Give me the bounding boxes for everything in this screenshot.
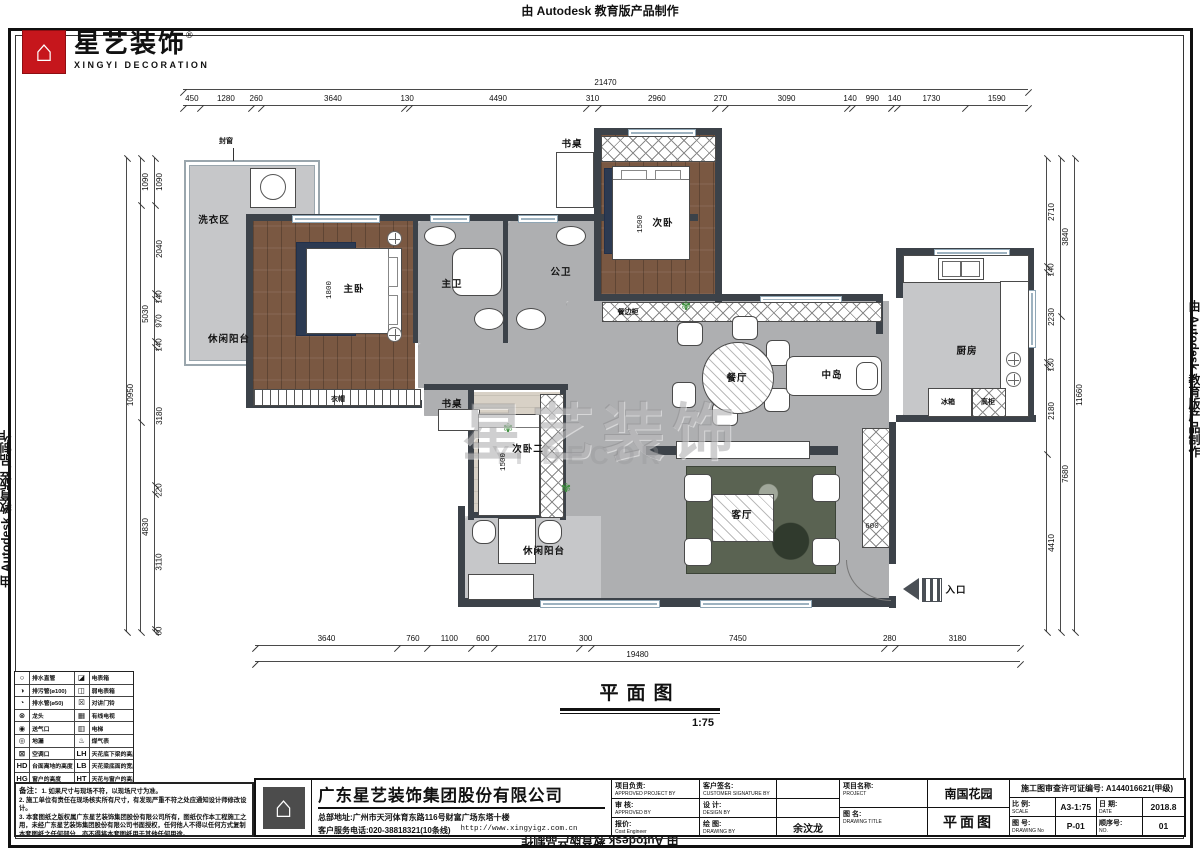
room-label: 冰箱 [941,397,955,407]
titleblock-row: 绘 图:DRAWING BY余汶龙 [700,818,839,836]
room-label: 客厅 [731,507,752,521]
island-stool [856,362,878,390]
legend-label: 地漏 [30,735,74,747]
room-label: 主卫 [441,276,462,290]
room-label: 书桌 [561,136,582,150]
armchair [812,474,840,502]
legend-label: 弱电表箱 [90,685,133,697]
entry-arrow-icon [903,578,919,600]
titleblock-house-icon: ⌂ [263,787,305,829]
room-label: 书桌 [441,396,462,410]
titleblock-meta-col: 施工图审查许可证编号: A144016621(甲级) 比 例:SCALE A3-… [1010,780,1184,835]
plan-dimension-label: 600 [865,523,879,531]
dimension-bottom-segments: 36407601100600217030074502803180 [255,632,1020,646]
titleblock-value [776,799,839,817]
legend-symbol: ▥ [75,722,90,734]
dimension-left-segments: 109020401409701403180220311060 [154,158,168,632]
legend-symbol: ◉ [15,722,30,734]
dimension-top-segments: 4501280260364013044903102960270309014099… [183,92,1028,106]
room-label: 高柜 [981,397,995,407]
dining-chair [732,316,758,340]
legend-label: 有线电视 [90,710,133,722]
legend-table: ○排水直管◪电表箱◑排污管(ø100)◫弱电表箱◔排水管(ø50)☒对讲门铃⊗龙… [14,671,134,785]
armchair [684,538,712,566]
room-label: 公卫 [550,264,571,278]
dimension-bottom-total: 19480 [255,648,1020,662]
legend-label: 天花梁底面的宽度 [90,760,133,772]
room-label: 次卧二 [512,441,544,455]
company-url: http://www.xingyigz.com.cn [461,825,578,836]
titleblock-row: 客户签名:CUSTOMER SIGNATURE BY [700,780,839,799]
legend-label: 排水管(ø50) [30,697,74,709]
plant-icon: ✾ [681,300,691,312]
legend-symbol: LH [75,748,90,760]
sink-public-bath [556,226,586,246]
titleblock-signature-col: 客户签名:CUSTOMER SIGNATURE BY设 计:DESIGN BY绘… [700,780,840,835]
legend-label: 电表箱 [90,672,133,684]
legend-symbol: ☒ [75,697,90,709]
wardrobe-bedroom2 [601,136,716,162]
legend-symbol: ◑ [15,685,30,697]
notes-box: 备注：1. 如果尺寸与现场不符，以现场尺寸为准。 2. 施工单位有责任在现场核实… [14,782,254,837]
window [540,600,660,608]
room-label: 洗衣区 [198,212,230,226]
plan-dimension-label: 1500 [500,453,508,471]
drawing-no-cell: 图 号:DRAWING No P-01 [1010,817,1097,835]
permit-number: 施工图审查许可证编号: A144016621(甲级) [1010,780,1184,798]
legend-symbol: ◫ [75,685,90,697]
legend-symbol: ◪ [75,672,90,684]
sealed-window-arrow [233,148,234,161]
logo-registered-mark: ® [186,30,193,40]
drawing-title-text: 平面图 [560,678,720,705]
legend-row: ⊗龙头▦有线电视 [15,710,133,723]
legend-row: ◔排水管(ø50)☒对讲门铃 [15,697,133,710]
washing-machine [250,168,296,208]
titleblock-row: 审 核:APPROVED BY [612,799,699,818]
logo-house-icon: ⌂ [22,30,66,74]
stove-burner [1006,352,1021,367]
legend-row: ○排水直管◪电表箱 [15,672,133,685]
dining-chair [677,322,703,346]
scale-cell: 比 例:SCALE A3-1:75 [1010,798,1097,817]
dimension-top-total: 21470 [183,76,1028,90]
legend-symbol: ◔ [15,697,30,709]
dimension-right-segments: 2710140223013021804410 [1046,158,1060,632]
legend-label: 对讲门铃 [90,697,133,709]
drawing-name-value: 平面图 [928,808,1009,835]
date-cell: 日 期:DATE 2018.8 [1097,798,1184,817]
company-address: 总部地址:广州市天河体育东路116号财富广场东塔十楼 [318,812,605,823]
ceiling-mark [387,231,402,246]
legend-row: ◎地漏♨煤气表 [15,735,133,748]
note-line: 3. 本套图纸之版权属广东星艺装饰集团股份有限公司所有，图纸仅作本工程施工之用，… [19,814,246,838]
wall-segment [458,506,465,606]
legend-row: HD台面离地的高度LB天花梁底面的宽度 [15,760,133,773]
wall-segment [715,128,722,304]
window [430,215,470,223]
toilet-public-bath [516,308,546,330]
legend-symbol: ○ [15,672,30,684]
drawing-scale: 1:75 [560,717,720,729]
armchair [812,538,840,566]
titleblock-value [776,780,839,798]
legend-symbol: ▦ [75,710,90,722]
titleblock-row: 报价:Cost Engineer [612,818,699,836]
legend-symbol: LB [75,760,90,772]
project-name-value: 南国花园 [928,780,1009,807]
room-label: 主卧 [343,281,364,295]
legend-label: 龙头 [30,710,74,722]
room-label: 餐边柜 [618,307,639,317]
legend-symbol: ⊗ [15,710,30,722]
date-value: 2018.8 [1143,798,1184,816]
legend-label: 天花底下梁的高度 [90,748,133,760]
title-block: ⌂ 广东星艺装饰集团股份有限公司 总部地址:广州市天河体育东路116号财富广场东… [254,778,1186,837]
wall-segment [503,221,508,343]
armchair [684,474,712,502]
drawing-name-label: 图 名:DRAWING TITLE [840,808,928,835]
ceiling-mark [387,327,402,342]
balcony-sink-unit [468,574,534,600]
wall-segment [594,135,601,301]
titleblock-value: 余汶龙 [776,818,839,836]
drawing-title: 平面图 1:75 [560,678,720,729]
titleblock-logo: ⌂ [256,780,312,835]
window [292,215,380,223]
plan-dimension-label: 1800 [326,281,334,299]
stove-burner [1006,372,1021,387]
dimension-right-total: 11660 [1074,158,1088,632]
dimension-left-total: 10950 [126,158,140,632]
wall-segment [594,294,720,301]
legend-label: 煤气表 [90,735,133,747]
legend-symbol: HD [15,760,30,772]
wall-segment [896,248,903,298]
company-name: 广东星艺装饰集团股份有限公司 [318,782,605,809]
balcony-chair [538,520,562,544]
logo-cn-text: 星艺装饰 [74,28,186,58]
dimension-right-mid: 38407680 [1060,158,1074,632]
legend-label: 台面离地的高度 [30,760,74,772]
room-label: 次卧 [652,215,673,229]
room-label: 衣帽 [331,394,345,404]
title-underline-thin [560,713,720,714]
logo-en-text: XINGYI DECORATION [74,60,209,70]
notes-title: 备注： [19,786,42,795]
sequence-no-value: 01 [1143,817,1184,835]
title-underline-thick [560,708,720,711]
room-label: 中岛 [821,367,842,381]
titleblock-approvals-col: 项目负责:APPROVED PROJECT BY审 核:APPROVED BY报… [612,780,700,835]
titleblock-project-col: 项目名称:PROJECT 南国花园 图 名:DRAWING TITLE 平面图 [840,780,1010,835]
titleblock-row: 设 计:DESIGN BY [700,799,839,818]
project-name-label: 项目名称:PROJECT [840,780,928,807]
legend-symbol: ◎ [15,735,30,747]
legend-row: ⊠空调口LH天花底下梁的高度 [15,748,133,761]
autodesk-banner-top: 由 Autodesk 教育版产品制作 [521,2,678,19]
plant-icon: ✾ [561,482,571,494]
room-label: 休闲阳台 [208,331,250,345]
legend-label: 电梯 [90,722,133,734]
drawing-sheet: 由 Autodesk 教育版产品制作 由 Autodesk 教育版产品制作 由 … [0,0,1200,848]
kitchen-sink [938,258,984,280]
note-line: 2. 施工单位有责任在现场核实所有尺寸，有发现严重不符之处应通知设计师修改设计。 [19,797,246,813]
sink-master-bath [424,226,456,246]
wall-segment [246,214,253,408]
entry-hatch-bars [922,578,942,602]
drawing-no-value: P-01 [1056,817,1097,835]
legend-row: ◑排污管(ø100)◫弱电表箱 [15,685,133,698]
room-label: 厨房 [956,343,977,357]
company-phone: 客户服务电话:020-38818321(10条线) [318,825,451,836]
legend-row: ◉送气口▥电梯 [15,722,133,735]
wall-segment [889,422,896,564]
sequence-no-cell: 顺序号:NO. 01 [1097,817,1184,835]
company-logo: ⌂ 星艺装饰® XINGYI DECORATION [22,30,209,74]
legend-symbol: ♨ [75,735,90,747]
note-line: 1. 如果尺寸与现场不符，以现场尺寸为准。 [42,788,162,795]
window [700,600,812,608]
legend-label: 排污管(ø100) [30,685,74,697]
bedroom2-bed [612,166,690,260]
window [518,215,558,223]
dimension-left-mid: 109050304830 [140,158,154,632]
window [1028,290,1036,348]
titleblock-company: 广东星艺装饰集团股份有限公司 总部地址:广州市天河体育东路116号财富广场东塔十… [312,780,612,835]
legend-label: 空调口 [30,748,74,760]
wall-segment [413,221,418,343]
scale-value: A3-1:75 [1056,798,1097,816]
legend-label: 排水直管 [30,672,74,684]
room-label: 餐厅 [726,370,747,384]
titleblock-row: 项目负责:APPROVED PROJECT BY [612,780,699,799]
room-label: 休闲阳台 [523,543,565,557]
room-label: 封窗 [219,136,233,146]
toilet-master-bath [474,308,504,330]
room-label: 入口 [945,582,966,596]
desk-bedroom2 [556,152,594,208]
legend-label: 送气口 [30,722,74,734]
balcony-table [498,518,536,564]
legend-symbol: ⊠ [15,748,30,760]
balcony-chair [472,520,496,544]
plan-dimension-label: 1500 [637,215,645,233]
